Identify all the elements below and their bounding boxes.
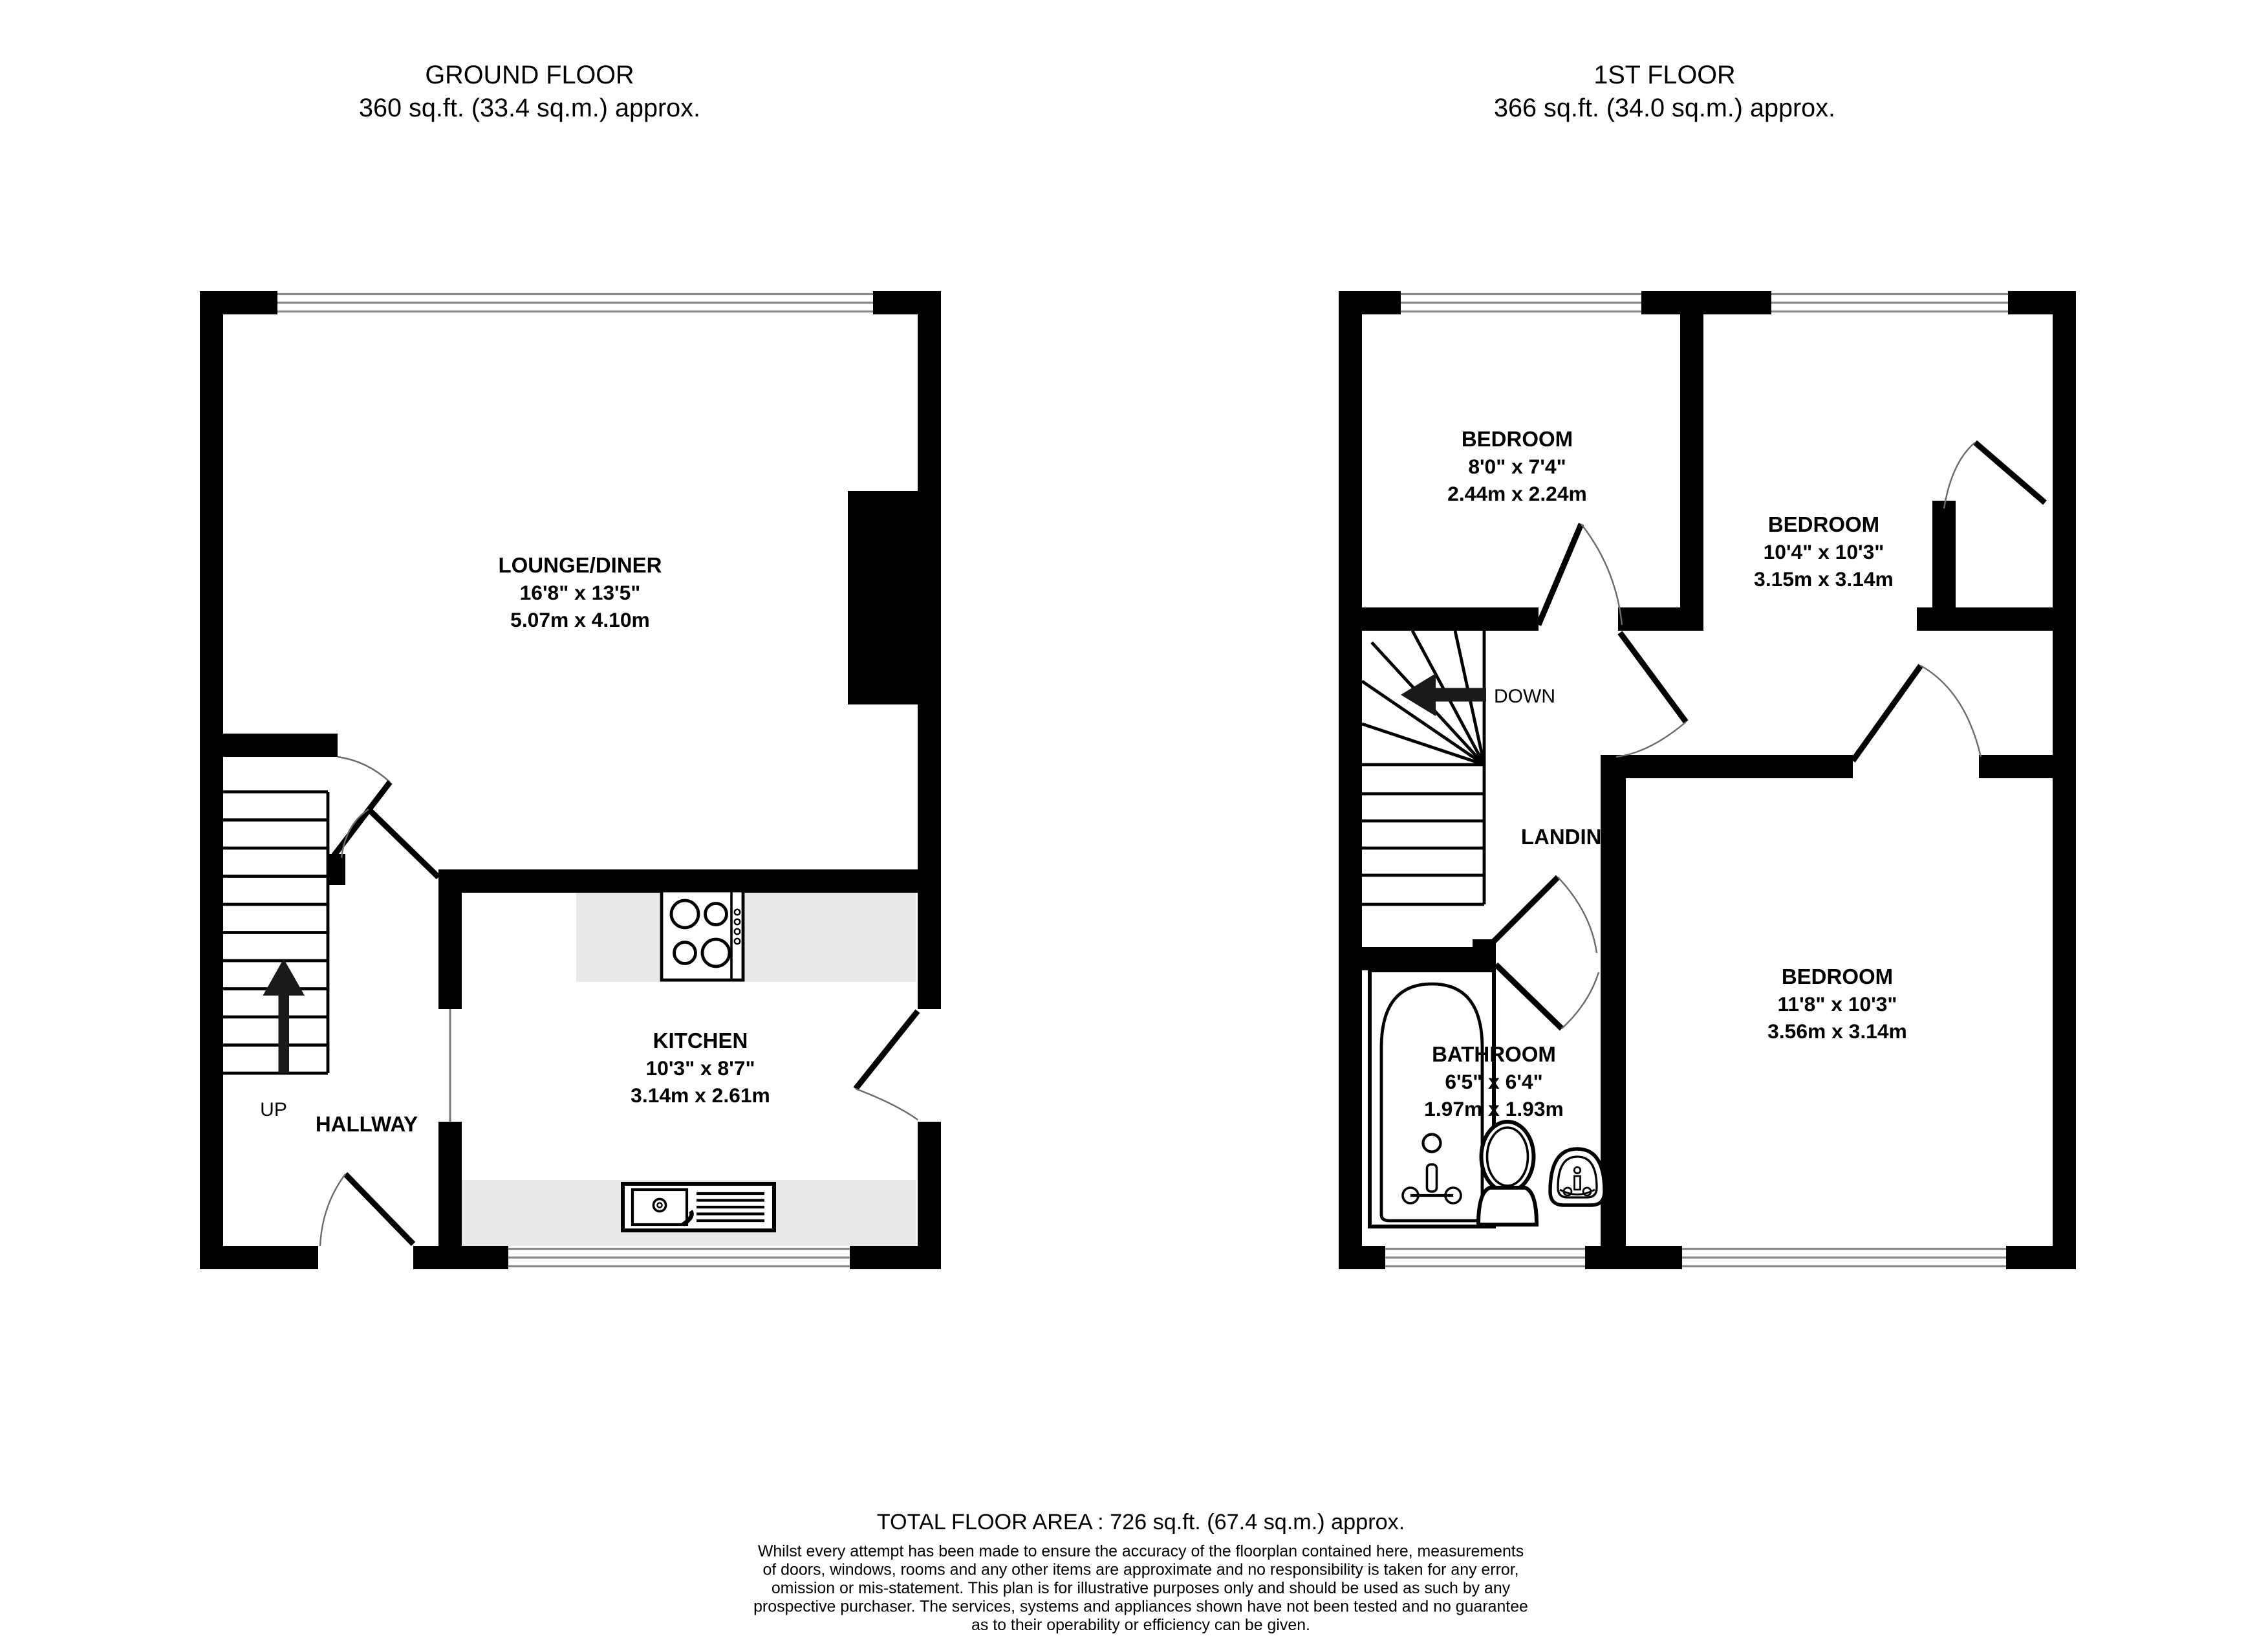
ff-wall-bd2-bottom [1917,607,2053,631]
hob-icon [662,891,743,980]
ground-floor-plan: LOUNGE/DINER 16'8" x 13'5" 5.07m x 4.10m… [200,291,941,1269]
bathroom-imperial: 6'5" x 6'4" [1445,1070,1542,1093]
lounge-imperial: 16'8" x 13'5" [520,581,641,604]
gf-wall-kitchen-left-lower [438,1122,462,1246]
lounge-name: LOUNGE/DINER [498,553,662,577]
floorplan-canvas: GROUND FLOOR 360 sq.ft. (33.4 sq.m.) app… [0,0,2268,1636]
bedroom1-window [1401,291,1641,314]
lounge-label: LOUNGE/DINER 16'8" x 13'5" 5.07m x 4.10m [498,553,662,631]
ff-wall-bottom-mid [1585,1246,1682,1269]
toilet-icon [1478,1122,1537,1225]
front-door [320,1174,413,1246]
gf-wall-bottom-right [850,1246,941,1269]
total-floor-area: TOTAL FLOOR AREA : 726 sq.ft. (67.4 sq.m… [877,1510,1405,1534]
lounge-door [334,757,438,877]
ff-wall-left [1339,291,1362,1269]
disclaimer-line-4: prospective purchaser. The services, sys… [753,1598,1528,1616]
disclaimer-line-2: of doors, windows, rooms and any other i… [762,1561,1518,1579]
bedroom1-door [1539,524,1686,757]
bedroom1-name: BEDROOM [1462,427,1573,451]
bedroom2-door [1944,442,2045,508]
bedroom1-label: BEDROOM 8'0" x 7'4" 2.44m x 2.24m [1447,427,1587,505]
bathroom-window [1385,1246,1585,1269]
ff-wall-bd2-stub [1932,501,1956,607]
ff-wall-bd3-top-left [1624,755,1853,778]
footer-block: TOTAL FLOOR AREA : 726 sq.ft. (67.4 sq.m… [753,1510,1528,1636]
bedroom3-imperial: 11'8" x 10'3" [1778,992,1897,1016]
lounge-window [277,291,873,314]
sink-icon [623,1184,774,1230]
disclaimer-line-3: omission or mis-statement. This plan is … [772,1579,1511,1597]
ff-wall-bottom-right [2006,1246,2076,1269]
gf-wall-left [200,291,223,1269]
up-label: UP [260,1099,287,1120]
gf-wall-bottom-mid [413,1246,508,1269]
hallway-label: HALLWAY [316,1112,418,1136]
bedroom3-name: BEDROOM [1782,965,1893,988]
bedroom1-imperial: 8'0" x 7'4" [1468,455,1566,478]
bathroom-label: BATHROOM 6'5" x 6'4" 1.97m x 1.93m [1424,1042,1564,1120]
bathroom-name: BATHROOM [1432,1042,1556,1066]
first-floor-subtitle: 366 sq.ft. (34.0 sq.m.) approx. [1494,94,1835,122]
bedroom2-window [1771,291,2008,314]
disclaimer-line-1: Whilst every attempt has been made to en… [758,1542,1524,1560]
floorplan-page: GROUND FLOOR 360 sq.ft. (33.4 sq.m.) app… [0,0,2268,1636]
ff-wall-bathroom-top [1362,947,1473,970]
gf-wall-right [918,291,941,1269]
kitchen-imperial: 10'3" x 8'7" [645,1056,755,1080]
basin-icon [1550,1149,1604,1205]
kitchen-door-arc [856,1089,918,1120]
gf-wall-bottom-left [200,1246,318,1269]
bathroom-metric: 1.97m x 1.93m [1424,1097,1564,1120]
gf-wall-kitchen-top [438,869,941,893]
ff-wall-bd3-top-right [1979,755,2053,778]
bedroom3-window [1682,1246,2006,1269]
kitchen-name: KITCHEN [653,1029,748,1052]
kitchen-door-opening [918,1009,941,1122]
first-floor-title-block: 1ST FLOOR 366 sq.ft. (34.0 sq.m.) approx… [1494,61,1835,122]
first-floor-plan: BEDROOM 8'0" x 7'4" 2.44m x 2.24m BEDROO… [1339,291,2076,1269]
bedroom2-name: BEDROOM [1768,512,1879,536]
kitchen-door-leaf [856,1011,918,1089]
first-floor-title: 1ST FLOOR [1593,61,1735,89]
ground-floor-title-block: GROUND FLOOR 360 sq.ft. (33.4 sq.m.) app… [359,61,700,122]
disclaimer-line-5: as to their operability or efficiency ca… [971,1616,1310,1634]
ff-wall-bd1-bottom-right [1618,607,1703,631]
gf-wall-kitchen-left-upper [438,893,462,1009]
chimney-breast [848,491,918,704]
gf-wall-hall-divider [200,734,338,757]
bedroom2-metric: 3.15m x 3.14m [1754,567,1894,591]
kitchen-label: KITCHEN 10'3" x 8'7" 3.14m x 2.61m [631,1029,770,1107]
bathroom-door [1492,877,1599,1029]
kitchen-window [508,1246,850,1269]
staircase-down [1362,631,1486,904]
ground-floor-title: GROUND FLOOR [425,61,634,89]
ff-wall-bd1-bottom-left [1362,607,1539,631]
landing-label: LANDING [1521,825,1618,849]
ff-wall-bottom-left [1339,1246,1385,1269]
bedroom2-imperial: 10'4" x 10'3" [1764,540,1885,563]
bedroom3-metric: 3.56m x 3.14m [1767,1020,1907,1043]
bedroom3-door [1853,666,1981,761]
bedroom1-metric: 2.44m x 2.24m [1447,482,1587,505]
ff-wall-right [2053,291,2076,1269]
bedroom3-label: BEDROOM 11'8" x 10'3" 3.56m x 3.14m [1767,965,1907,1043]
bedroom2-label: BEDROOM 10'4" x 10'3" 3.15m x 3.14m [1754,512,1894,591]
staircase-up [223,792,345,1073]
kitchen-metric: 3.14m x 2.61m [631,1084,770,1107]
kitchen-counter-top [576,893,916,982]
down-label: DOWN [1494,686,1555,707]
lounge-metric: 5.07m x 4.10m [510,608,650,631]
ff-wall-bd1-bd2-divider [1680,314,1703,631]
ground-floor-subtitle: 360 sq.ft. (33.4 sq.m.) approx. [359,94,700,122]
